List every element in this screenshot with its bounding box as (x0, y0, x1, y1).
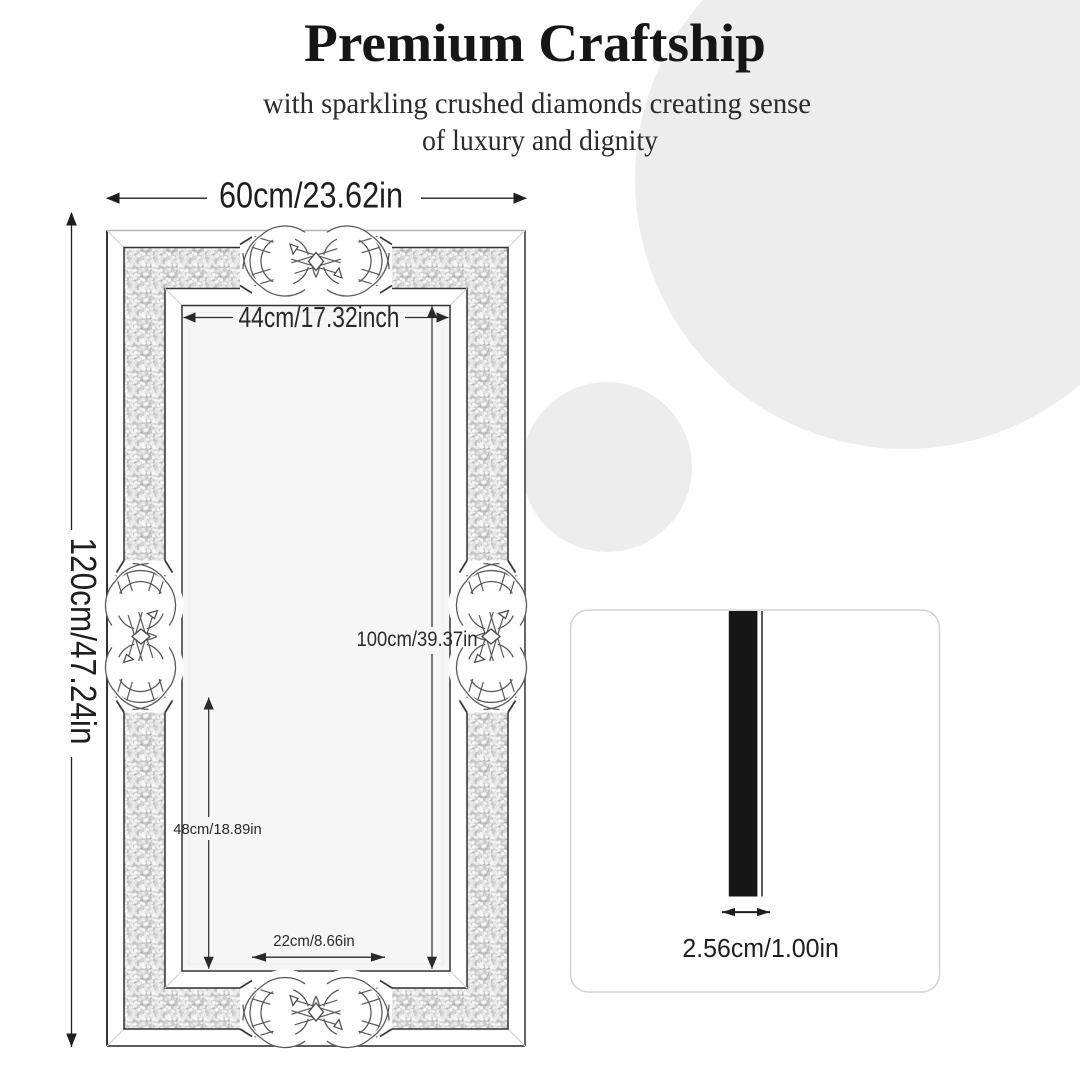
svg-text:Premium Craftship: Premium Craftship (304, 13, 766, 73)
svg-text:22cm/8.66in: 22cm/8.66in (273, 933, 355, 950)
svg-text:48cm/18.89in: 48cm/18.89in (173, 821, 262, 838)
svg-text:of luxury and dignity: of luxury and dignity (422, 124, 658, 157)
svg-text:2.56cm/1.00in: 2.56cm/1.00in (682, 935, 839, 963)
svg-text:60cm/23.62in: 60cm/23.62in (219, 175, 403, 216)
svg-text:120cm/47.24in: 120cm/47.24in (63, 538, 104, 745)
svg-text:100cm/39.37in: 100cm/39.37in (357, 627, 478, 651)
svg-text:with sparkling crushed diamond: with sparkling crushed diamonds creating… (263, 87, 811, 120)
svg-text:44cm/17.32inch: 44cm/17.32inch (239, 302, 400, 334)
